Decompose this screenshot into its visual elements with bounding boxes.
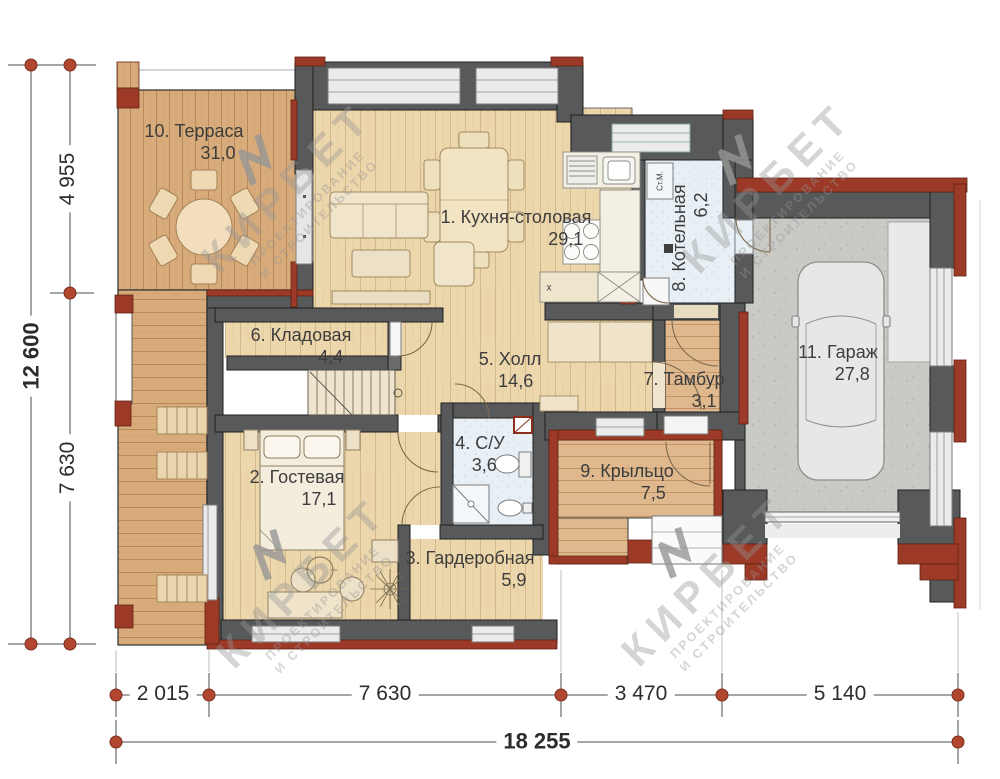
room-label-boiler: 8. Котельная 6,2 [669, 184, 713, 291]
room-label-kitchen: 1. Кухня-столовая 29,1 [441, 207, 592, 251]
room-label-porch: 9. Крыльцо 7,5 [580, 461, 673, 505]
room-name: 10. Терраса [144, 121, 243, 143]
terrace-opening [116, 308, 132, 404]
room-area: 14,6 [479, 371, 541, 393]
room-label-terrace: 10. Терраса 31,0 [144, 121, 243, 165]
stairs-floor [308, 370, 395, 415]
room-area: 6,2 [691, 184, 713, 291]
dim-bottom-2: 7 630 [352, 683, 419, 705]
porch-steps [652, 516, 722, 564]
dim-left-total: 12 600 [19, 315, 42, 396]
garage-bench [888, 222, 932, 362]
room-label-bathroom: 4. С/У 3,6 [455, 433, 504, 477]
dim-bottom-4: 5 140 [807, 683, 874, 705]
room-area: 31,0 [144, 143, 243, 165]
room-name: 6. Кладовая [251, 325, 352, 347]
room-label-vestibule: 7. Тамбур 3,1 [643, 369, 724, 413]
floor-plan-canvas: КИРБЕТ ПРОЕКТИРОВАНИЕ И СТРОИТЕЛЬСТВО КИ… [0, 0, 1000, 779]
dim-bottom-3: 3 470 [608, 683, 675, 705]
room-area: 3,1 [643, 391, 724, 413]
room-area: 7,5 [580, 483, 673, 505]
room-area: 3,6 [455, 455, 504, 477]
room-label-hall: 5. Холл 14,6 [479, 349, 541, 393]
room-label-garage: 11. Гараж 27,8 [798, 342, 878, 386]
room-label-guest: 2. Гостевая 17,1 [250, 467, 345, 511]
room-name: 7. Тамбур [643, 369, 724, 391]
room-name: 3. Гардеробная [406, 548, 535, 570]
room-name: 2. Гостевая [250, 467, 345, 489]
room-area: 29,1 [441, 229, 592, 251]
dim-left-top: 4 955 [57, 146, 79, 213]
room-name: 5. Холл [479, 349, 541, 371]
room-label-storage: 6. Кладовая 4,4 [251, 325, 352, 369]
kitchen-island-mark: х [547, 283, 552, 294]
washing-machine-label: Ст.М. [656, 171, 665, 191]
room-area: 5,9 [406, 570, 535, 592]
room-area: 17,1 [250, 489, 345, 511]
room-label-wardrobe: 3. Гардеробная 5,9 [406, 548, 535, 592]
room-name: 4. С/У [455, 433, 504, 455]
room-name: 8. Котельная [669, 184, 691, 291]
dim-bottom-1: 2 015 [130, 683, 197, 705]
room-area: 27,8 [798, 364, 878, 386]
room-name: 11. Гараж [798, 342, 878, 364]
dim-bottom-total: 18 255 [496, 729, 577, 752]
dim-left-bottom: 7 630 [57, 435, 79, 502]
room-name: 9. Крыльцо [580, 461, 673, 483]
room-area: 4,4 [251, 347, 352, 369]
terrace-eave [118, 70, 311, 90]
room-name: 1. Кухня-столовая [441, 207, 592, 229]
